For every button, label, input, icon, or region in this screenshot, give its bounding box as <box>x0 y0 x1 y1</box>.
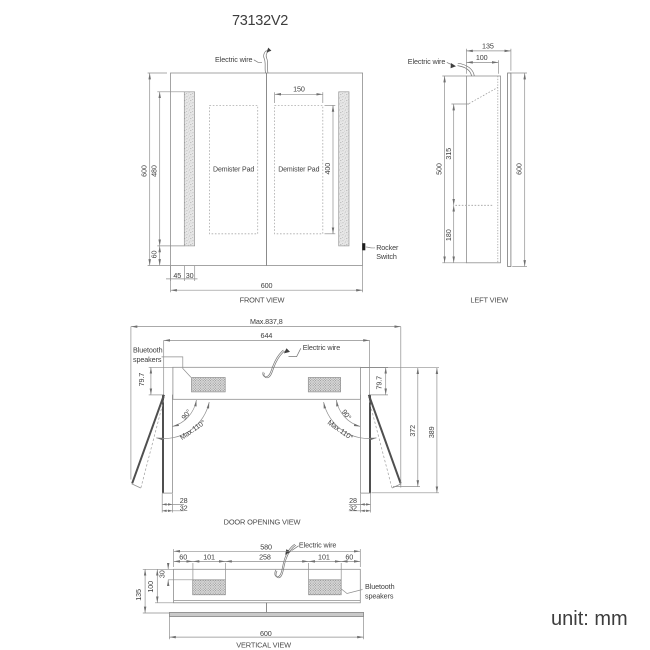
svg-text:580: 580 <box>260 542 272 551</box>
svg-text:60: 60 <box>179 553 187 562</box>
svg-text:30: 30 <box>158 570 167 578</box>
svg-text:32: 32 <box>349 503 357 512</box>
svg-text:speakers: speakers <box>365 591 394 600</box>
svg-text:Electric wire: Electric wire <box>299 541 337 550</box>
svg-text:Demister Pad: Demister Pad <box>213 166 254 173</box>
svg-text:45: 45 <box>173 271 181 280</box>
svg-text:Switch: Switch <box>376 252 397 261</box>
svg-text:79.7: 79.7 <box>137 373 146 387</box>
svg-text:101: 101 <box>318 553 330 562</box>
svg-text:Electric wire: Electric wire <box>303 343 341 352</box>
svg-text:Bluetooth: Bluetooth <box>365 582 395 591</box>
svg-text:315: 315 <box>444 148 453 160</box>
svg-text:60: 60 <box>149 251 158 259</box>
svg-text:32: 32 <box>180 503 188 512</box>
svg-text:135: 135 <box>134 589 143 601</box>
svg-text:600: 600 <box>515 163 524 175</box>
svg-text:73132V2: 73132V2 <box>232 13 288 29</box>
svg-text:Max.837,8: Max.837,8 <box>250 317 283 326</box>
svg-text:600: 600 <box>261 281 273 290</box>
svg-text:Bluetooth: Bluetooth <box>133 346 163 355</box>
svg-text:644: 644 <box>261 331 273 340</box>
svg-text:Rocker: Rocker <box>376 243 399 252</box>
svg-text:Electric wire: Electric wire <box>215 55 253 64</box>
svg-text:100: 100 <box>146 581 155 593</box>
svg-text:180: 180 <box>444 229 453 241</box>
svg-text:Electric wire: Electric wire <box>408 57 446 66</box>
svg-text:100: 100 <box>476 53 488 62</box>
svg-text:135: 135 <box>482 41 494 50</box>
svg-text:FRONT VIEW: FRONT VIEW <box>240 295 285 304</box>
svg-text:LEFT VIEW: LEFT VIEW <box>470 295 508 304</box>
svg-text:480: 480 <box>149 165 158 177</box>
svg-text:600: 600 <box>139 165 148 177</box>
svg-text:389: 389 <box>427 426 436 438</box>
svg-text:unit: mm: unit: mm <box>551 608 628 630</box>
svg-text:VERTICAL VIEW: VERTICAL VIEW <box>236 640 291 649</box>
svg-text:500: 500 <box>434 163 443 175</box>
svg-text:DOOR OPENING VIEW: DOOR OPENING VIEW <box>224 518 301 527</box>
svg-text:speakers: speakers <box>133 355 162 364</box>
svg-text:258: 258 <box>259 553 271 562</box>
svg-text:30: 30 <box>186 271 194 280</box>
svg-text:60: 60 <box>345 553 353 562</box>
svg-text:150: 150 <box>293 85 305 94</box>
svg-text:79.7: 79.7 <box>375 376 384 390</box>
svg-text:Demister Pad: Demister Pad <box>278 166 319 173</box>
svg-text:400: 400 <box>323 163 332 175</box>
svg-text:101: 101 <box>203 553 215 562</box>
svg-text:372: 372 <box>408 425 417 437</box>
svg-text:600: 600 <box>260 629 272 638</box>
